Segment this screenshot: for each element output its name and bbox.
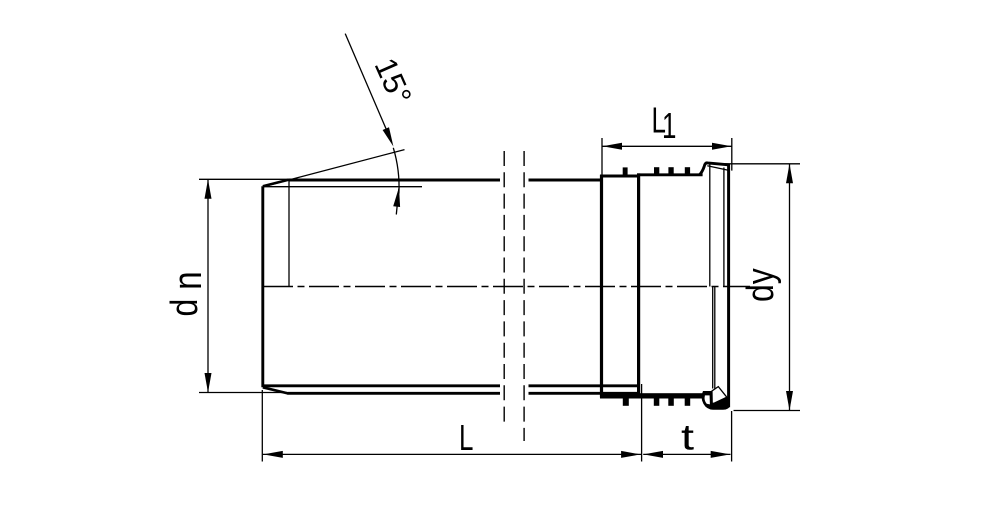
- svg-text:t: t: [681, 417, 694, 458]
- svg-text:dy: dy: [739, 268, 781, 302]
- svg-text:1: 1: [662, 106, 676, 146]
- svg-text:L: L: [459, 418, 473, 458]
